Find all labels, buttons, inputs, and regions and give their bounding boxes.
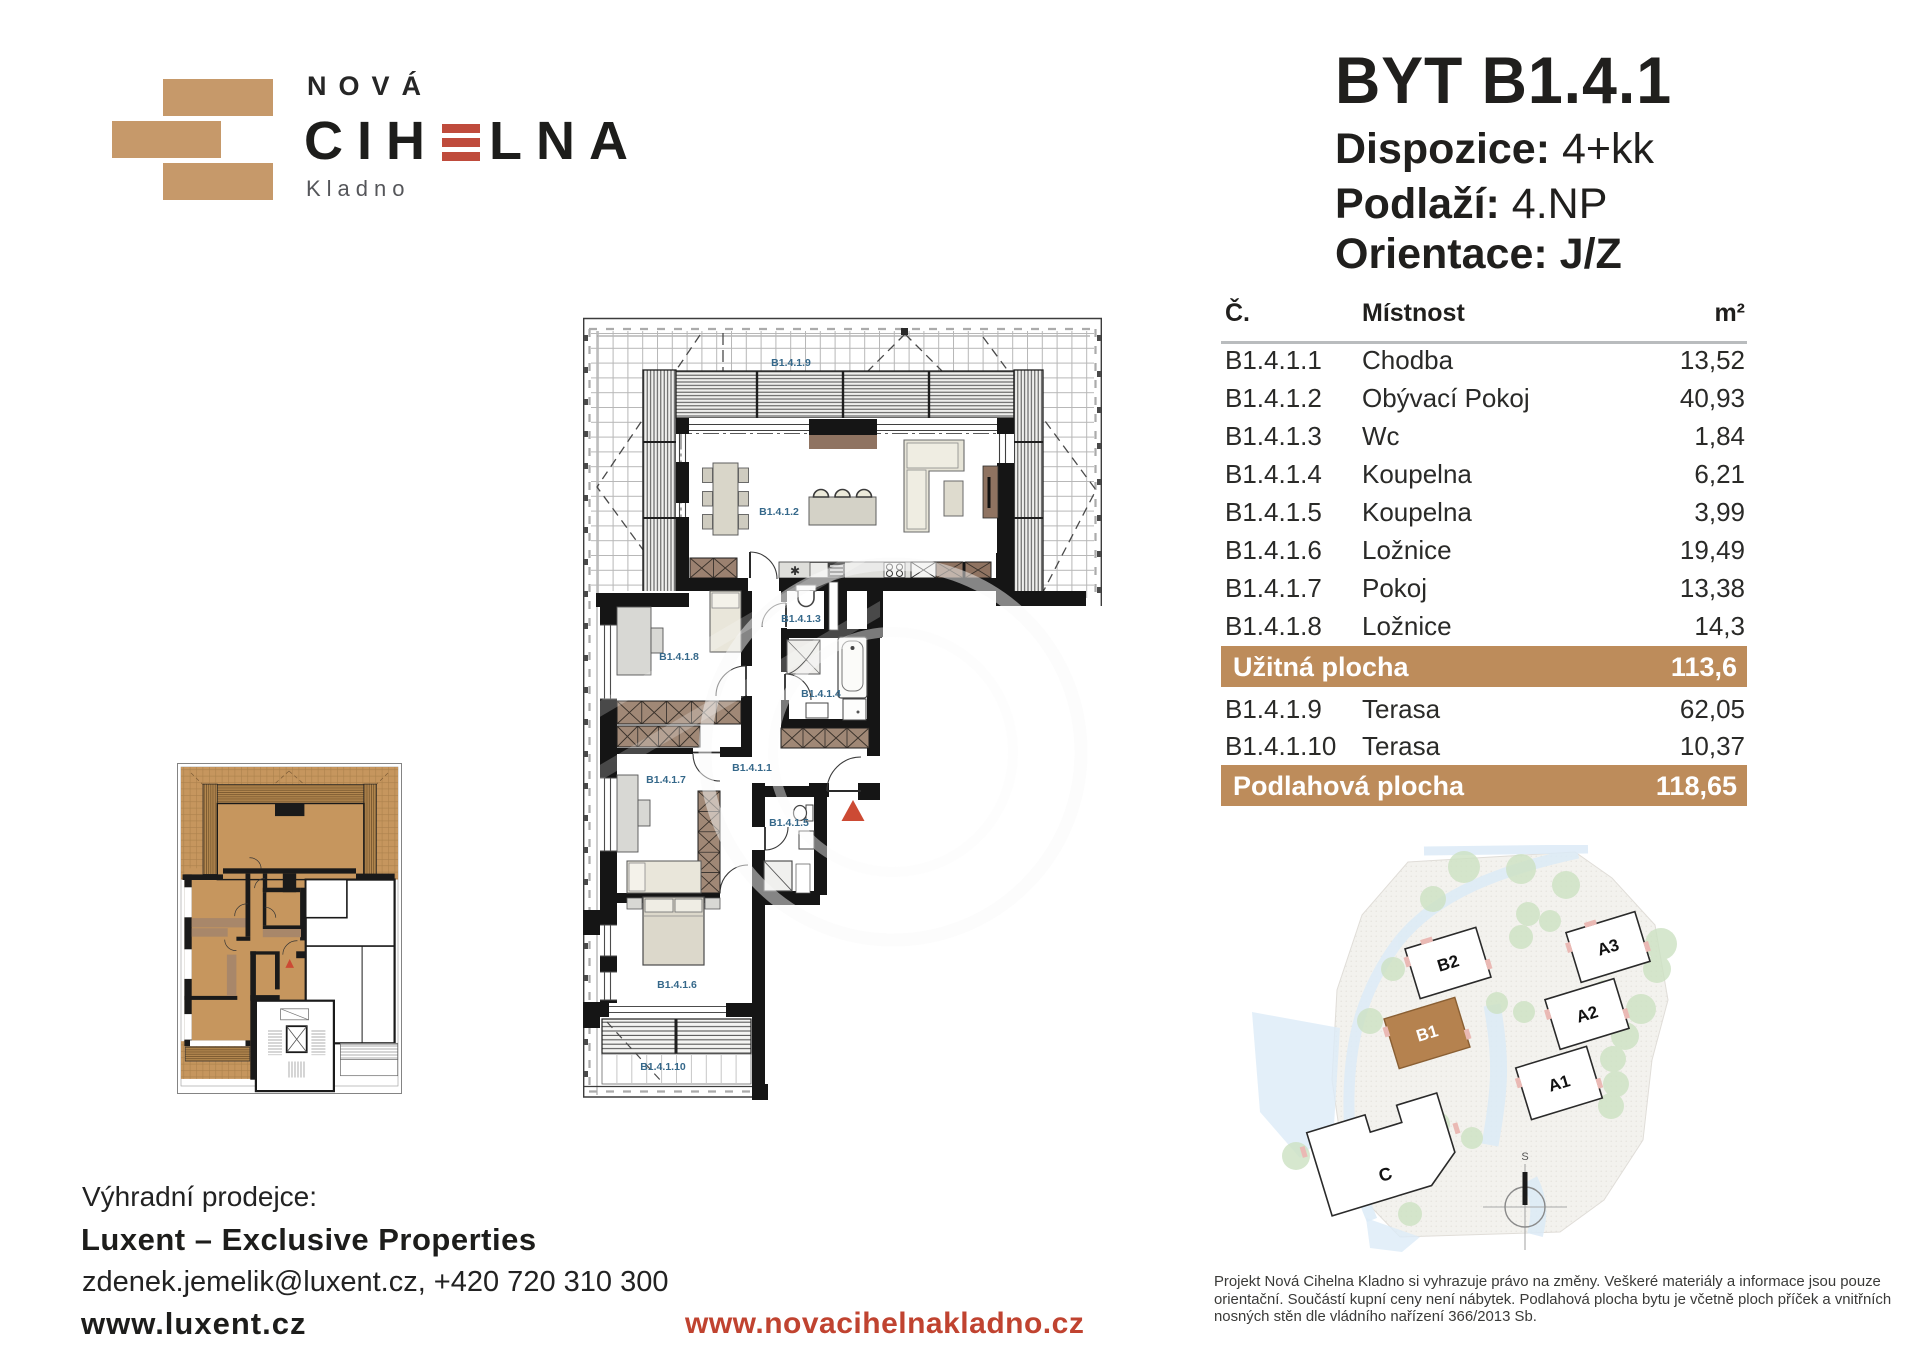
svg-text:✱: ✱ bbox=[790, 564, 800, 578]
svg-text:B1.4.1.4: B1.4.1.4 bbox=[801, 688, 841, 700]
svg-text:B1.4.1.5: B1.4.1.5 bbox=[769, 817, 809, 829]
svg-text:B1.4.1.8: B1.4.1.8 bbox=[659, 651, 699, 663]
svg-text:B1.4.1.6: B1.4.1.6 bbox=[657, 979, 697, 991]
svg-text:B1.4.1.9: B1.4.1.9 bbox=[771, 357, 811, 369]
svg-text:B1.4.1.10: B1.4.1.10 bbox=[640, 1061, 686, 1073]
svg-text:B1.4.1.3: B1.4.1.3 bbox=[781, 613, 821, 625]
svg-text:B1.4.1.1: B1.4.1.1 bbox=[732, 762, 772, 774]
svg-text:S: S bbox=[1521, 1151, 1528, 1163]
svg-text:B1.4.1.2: B1.4.1.2 bbox=[759, 506, 799, 518]
svg-text:B1.4.1.7: B1.4.1.7 bbox=[646, 774, 686, 786]
